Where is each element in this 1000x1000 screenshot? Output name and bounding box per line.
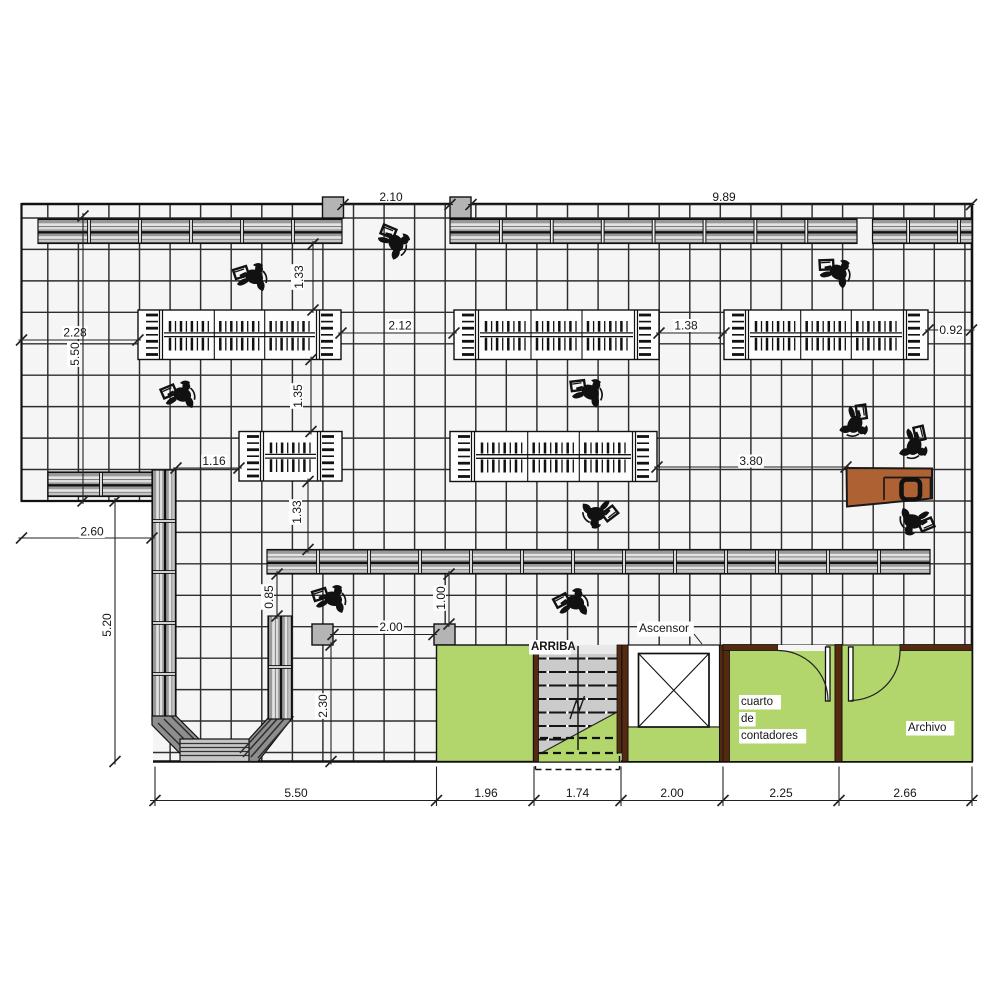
svg-text:1.00: 1.00: [434, 586, 448, 610]
svg-text:2.30: 2.30: [316, 694, 330, 718]
svg-text:2.60: 2.60: [80, 525, 104, 539]
svg-text:1.35: 1.35: [291, 384, 305, 408]
svg-text:2.25: 2.25: [769, 786, 793, 800]
svg-text:de: de: [741, 713, 754, 725]
svg-text:contadores: contadores: [741, 730, 798, 742]
svg-text:ARRIBA: ARRIBA: [531, 641, 576, 653]
svg-text:5.50: 5.50: [68, 342, 82, 366]
svg-text:1.33: 1.33: [292, 265, 306, 289]
svg-text:cuarto: cuarto: [741, 696, 773, 708]
svg-text:0.85: 0.85: [262, 585, 276, 609]
svg-text:5.20: 5.20: [100, 613, 114, 637]
svg-text:2.00: 2.00: [660, 786, 684, 800]
svg-text:5.50: 5.50: [284, 786, 308, 800]
svg-text:3.80: 3.80: [739, 454, 763, 468]
svg-text:1.38: 1.38: [674, 319, 698, 333]
svg-text:1.16: 1.16: [202, 454, 226, 468]
svg-text:1.96: 1.96: [474, 786, 498, 800]
svg-text:Ascensor: Ascensor: [639, 621, 689, 635]
svg-text:2.00: 2.00: [379, 620, 403, 634]
svg-text:2.10: 2.10: [379, 190, 403, 204]
svg-text:1.33: 1.33: [290, 500, 304, 524]
svg-text:2.12: 2.12: [388, 319, 412, 333]
svg-text:9.89: 9.89: [712, 190, 736, 204]
svg-text:0.92: 0.92: [939, 323, 963, 337]
svg-text:2.66: 2.66: [893, 786, 917, 800]
svg-text:Archivo: Archivo: [908, 722, 946, 734]
svg-text:1.74: 1.74: [566, 786, 590, 800]
